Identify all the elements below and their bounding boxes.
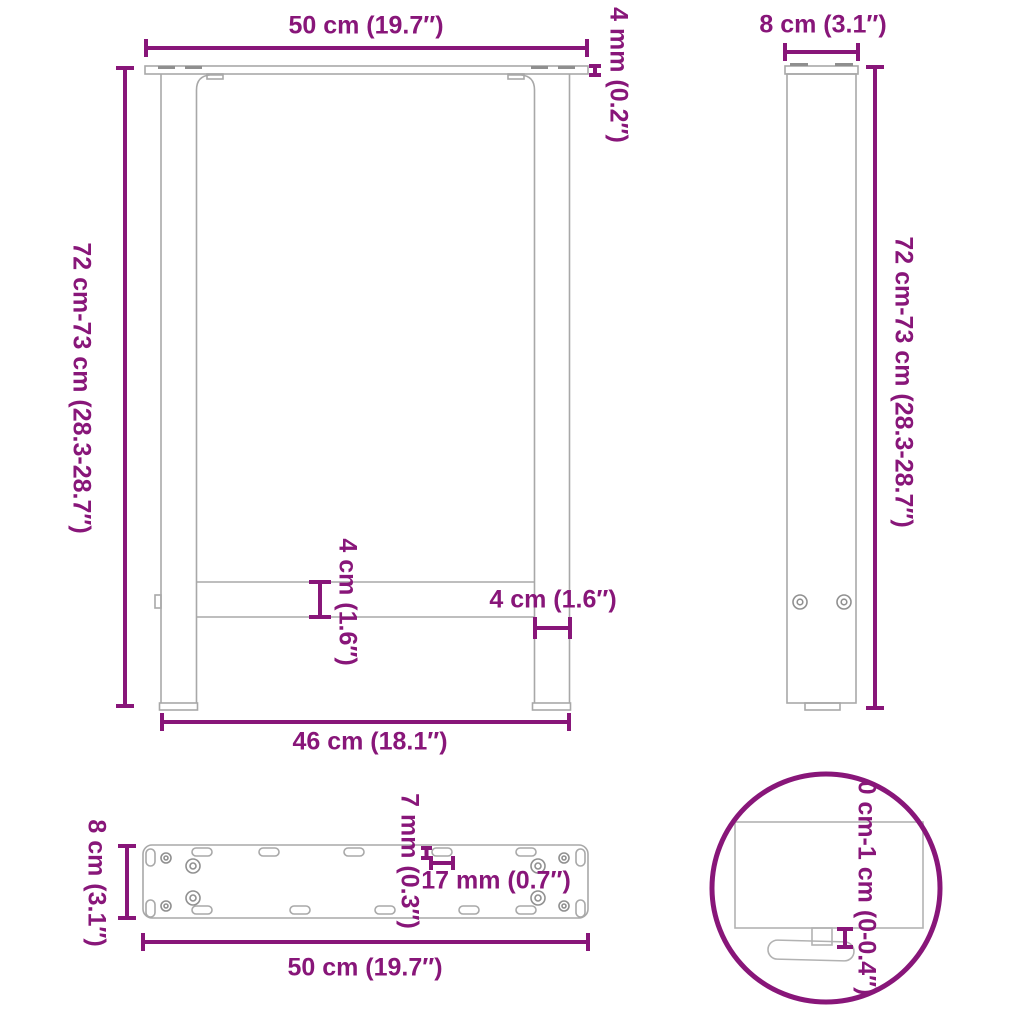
side-view-drawing (785, 65, 858, 711)
dim-side-height (866, 67, 884, 708)
dim-front-width-top (146, 39, 587, 57)
label-plate-width: 50 cm (19.7″) (287, 956, 442, 981)
dim-side-depth (785, 43, 858, 61)
dim-plate-depth (118, 846, 136, 918)
foot-detail-drawing (712, 774, 940, 1002)
side-foot (805, 703, 840, 710)
detail-leg-bottom (735, 822, 923, 928)
front-right-leg (508, 74, 571, 710)
front-right-foot (533, 703, 571, 710)
label-front-height: 72 cm-73 cm (28.3-28.7″) (69, 242, 94, 533)
label-detail-adjust-range: 0 cm-1 cm (0-0.4″) (854, 781, 879, 996)
label-front-plate-thickness: 4 mm (0.2″) (606, 7, 631, 143)
detail-adjuster-stub (812, 928, 832, 945)
detail-circle (712, 774, 940, 1002)
label-front-width-bottom: 46 cm (18.1″) (292, 730, 447, 755)
dim-front-leg-width (535, 617, 570, 639)
dim-front-plate-thickness (589, 66, 601, 75)
dim-plate-width (143, 933, 588, 951)
plate-slots-top (192, 848, 536, 856)
label-front-leg-width: 4 cm (1.6″) (489, 588, 616, 613)
front-left-leg (155, 74, 223, 710)
front-left-foot (160, 703, 198, 710)
label-plate-slot-height: 7 mm (0.3″) (397, 793, 422, 929)
label-front-crossbar: 4 cm (1.6″) (335, 538, 360, 665)
front-crossbar (197, 582, 535, 617)
label-plate-slot-width: 17 mm (0.7″) (421, 869, 571, 894)
label-plate-depth: 8 cm (3.1″) (84, 819, 109, 946)
dimension-lines (116, 39, 884, 951)
dim-front-crossbar (309, 582, 331, 617)
plate-slots-bottom (192, 906, 536, 914)
label-front-width-top: 50 cm (19.7″) (288, 14, 443, 39)
side-top-plate (785, 66, 858, 74)
detail-foot-pad (768, 940, 854, 961)
label-side-depth: 8 cm (3.1″) (759, 13, 886, 38)
label-side-height: 72 cm-73 cm (28.3-28.7″) (891, 236, 916, 527)
dimension-diagram: 50 cm (19.7″) 4 mm (0.2″) 72 cm-73 cm (2… (0, 0, 1024, 1024)
side-screws (793, 595, 851, 609)
front-top-plate (145, 66, 588, 74)
dim-front-height (116, 68, 134, 706)
